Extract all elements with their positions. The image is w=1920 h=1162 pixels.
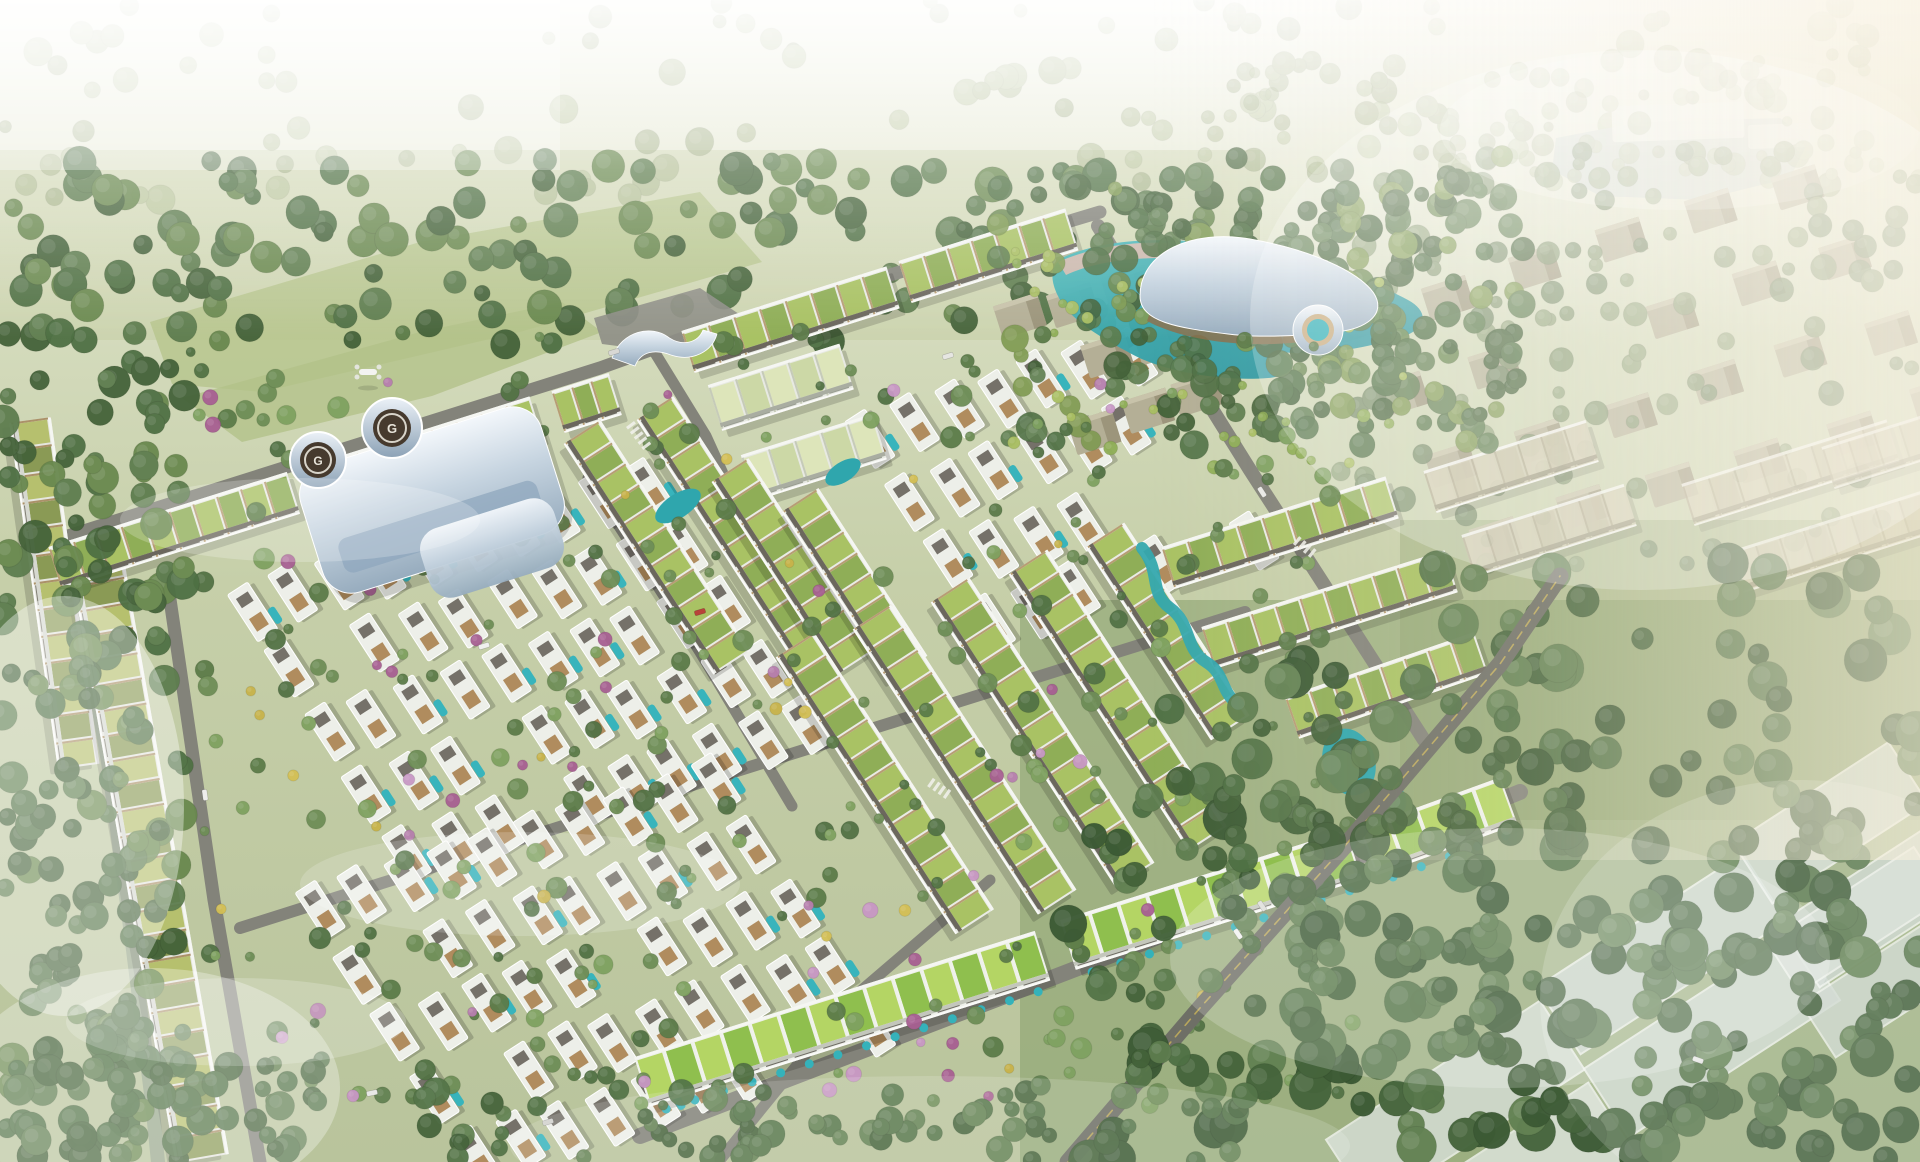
aerial-masterplan-render: GG <box>0 0 1920 1162</box>
aerial-render-canvas: GG <box>0 0 1920 1162</box>
svg-text:G: G <box>387 421 397 436</box>
svg-text:G: G <box>313 454 322 468</box>
